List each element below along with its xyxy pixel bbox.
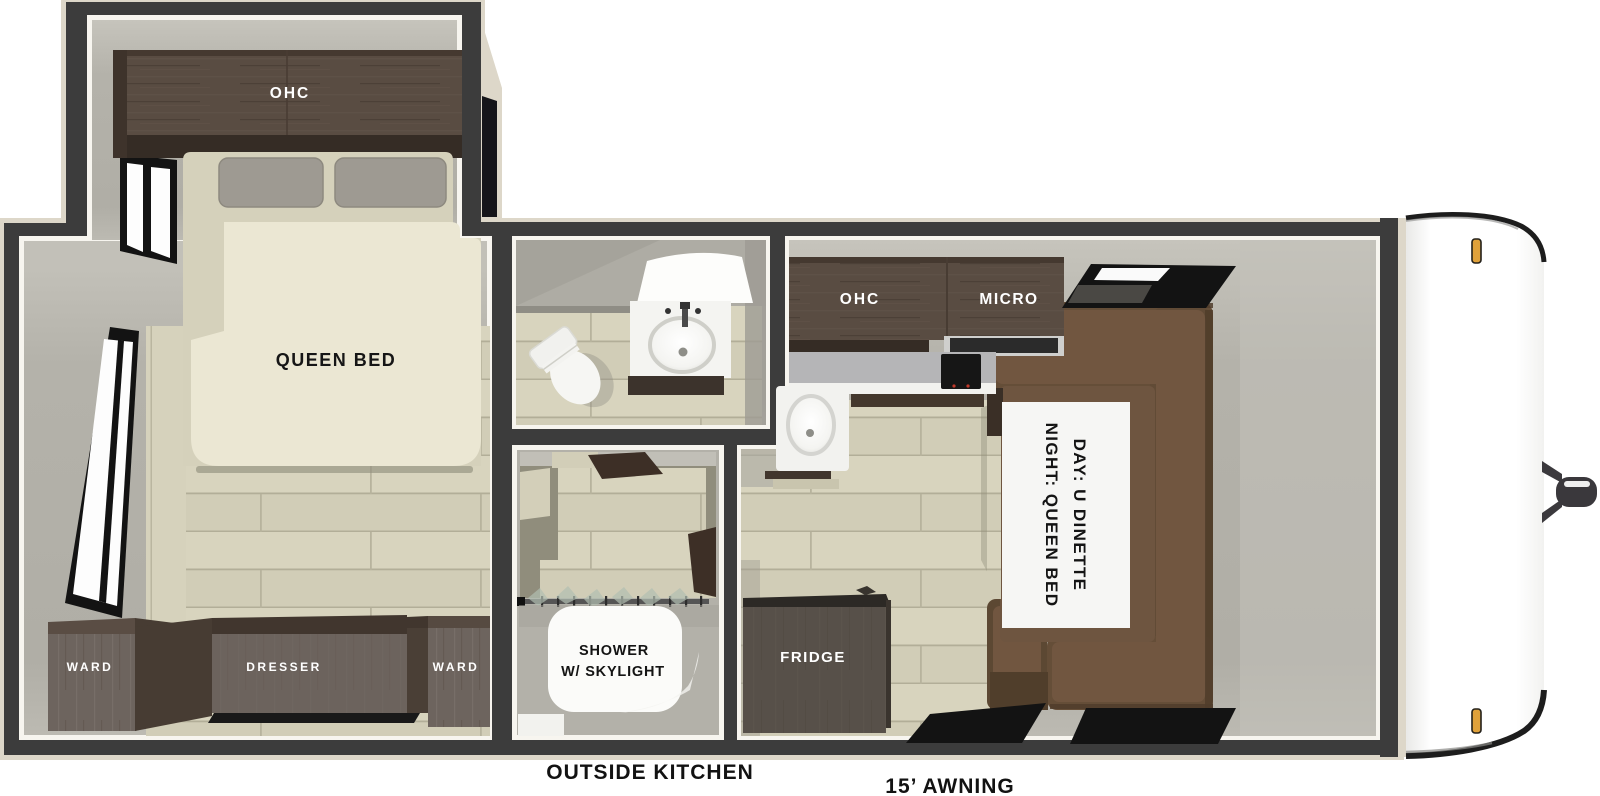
svg-text:DAY: U DINETTE: DAY: U DINETTE — [1070, 439, 1089, 592]
svg-text:WARD: WARD — [433, 660, 480, 674]
svg-text:NIGHT: QUEEN BED: NIGHT: QUEEN BED — [1042, 423, 1061, 608]
svg-text:W/ SKYLIGHT: W/ SKYLIGHT — [561, 664, 665, 680]
svg-text:DRESSER: DRESSER — [246, 660, 322, 674]
svg-text:OUTSIDE KITCHEN: OUTSIDE KITCHEN — [546, 761, 754, 784]
svg-text:OHC: OHC — [270, 85, 310, 102]
svg-text:OHC: OHC — [840, 291, 880, 308]
svg-text:FRIDGE: FRIDGE — [780, 649, 846, 666]
svg-text:MICRO: MICRO — [979, 291, 1038, 308]
svg-text:15’ AWNING: 15’ AWNING — [885, 775, 1014, 796]
svg-text:WARD: WARD — [67, 660, 114, 674]
svg-text:QUEEN BED: QUEEN BED — [276, 350, 397, 370]
svg-text:SHOWER: SHOWER — [579, 643, 649, 659]
